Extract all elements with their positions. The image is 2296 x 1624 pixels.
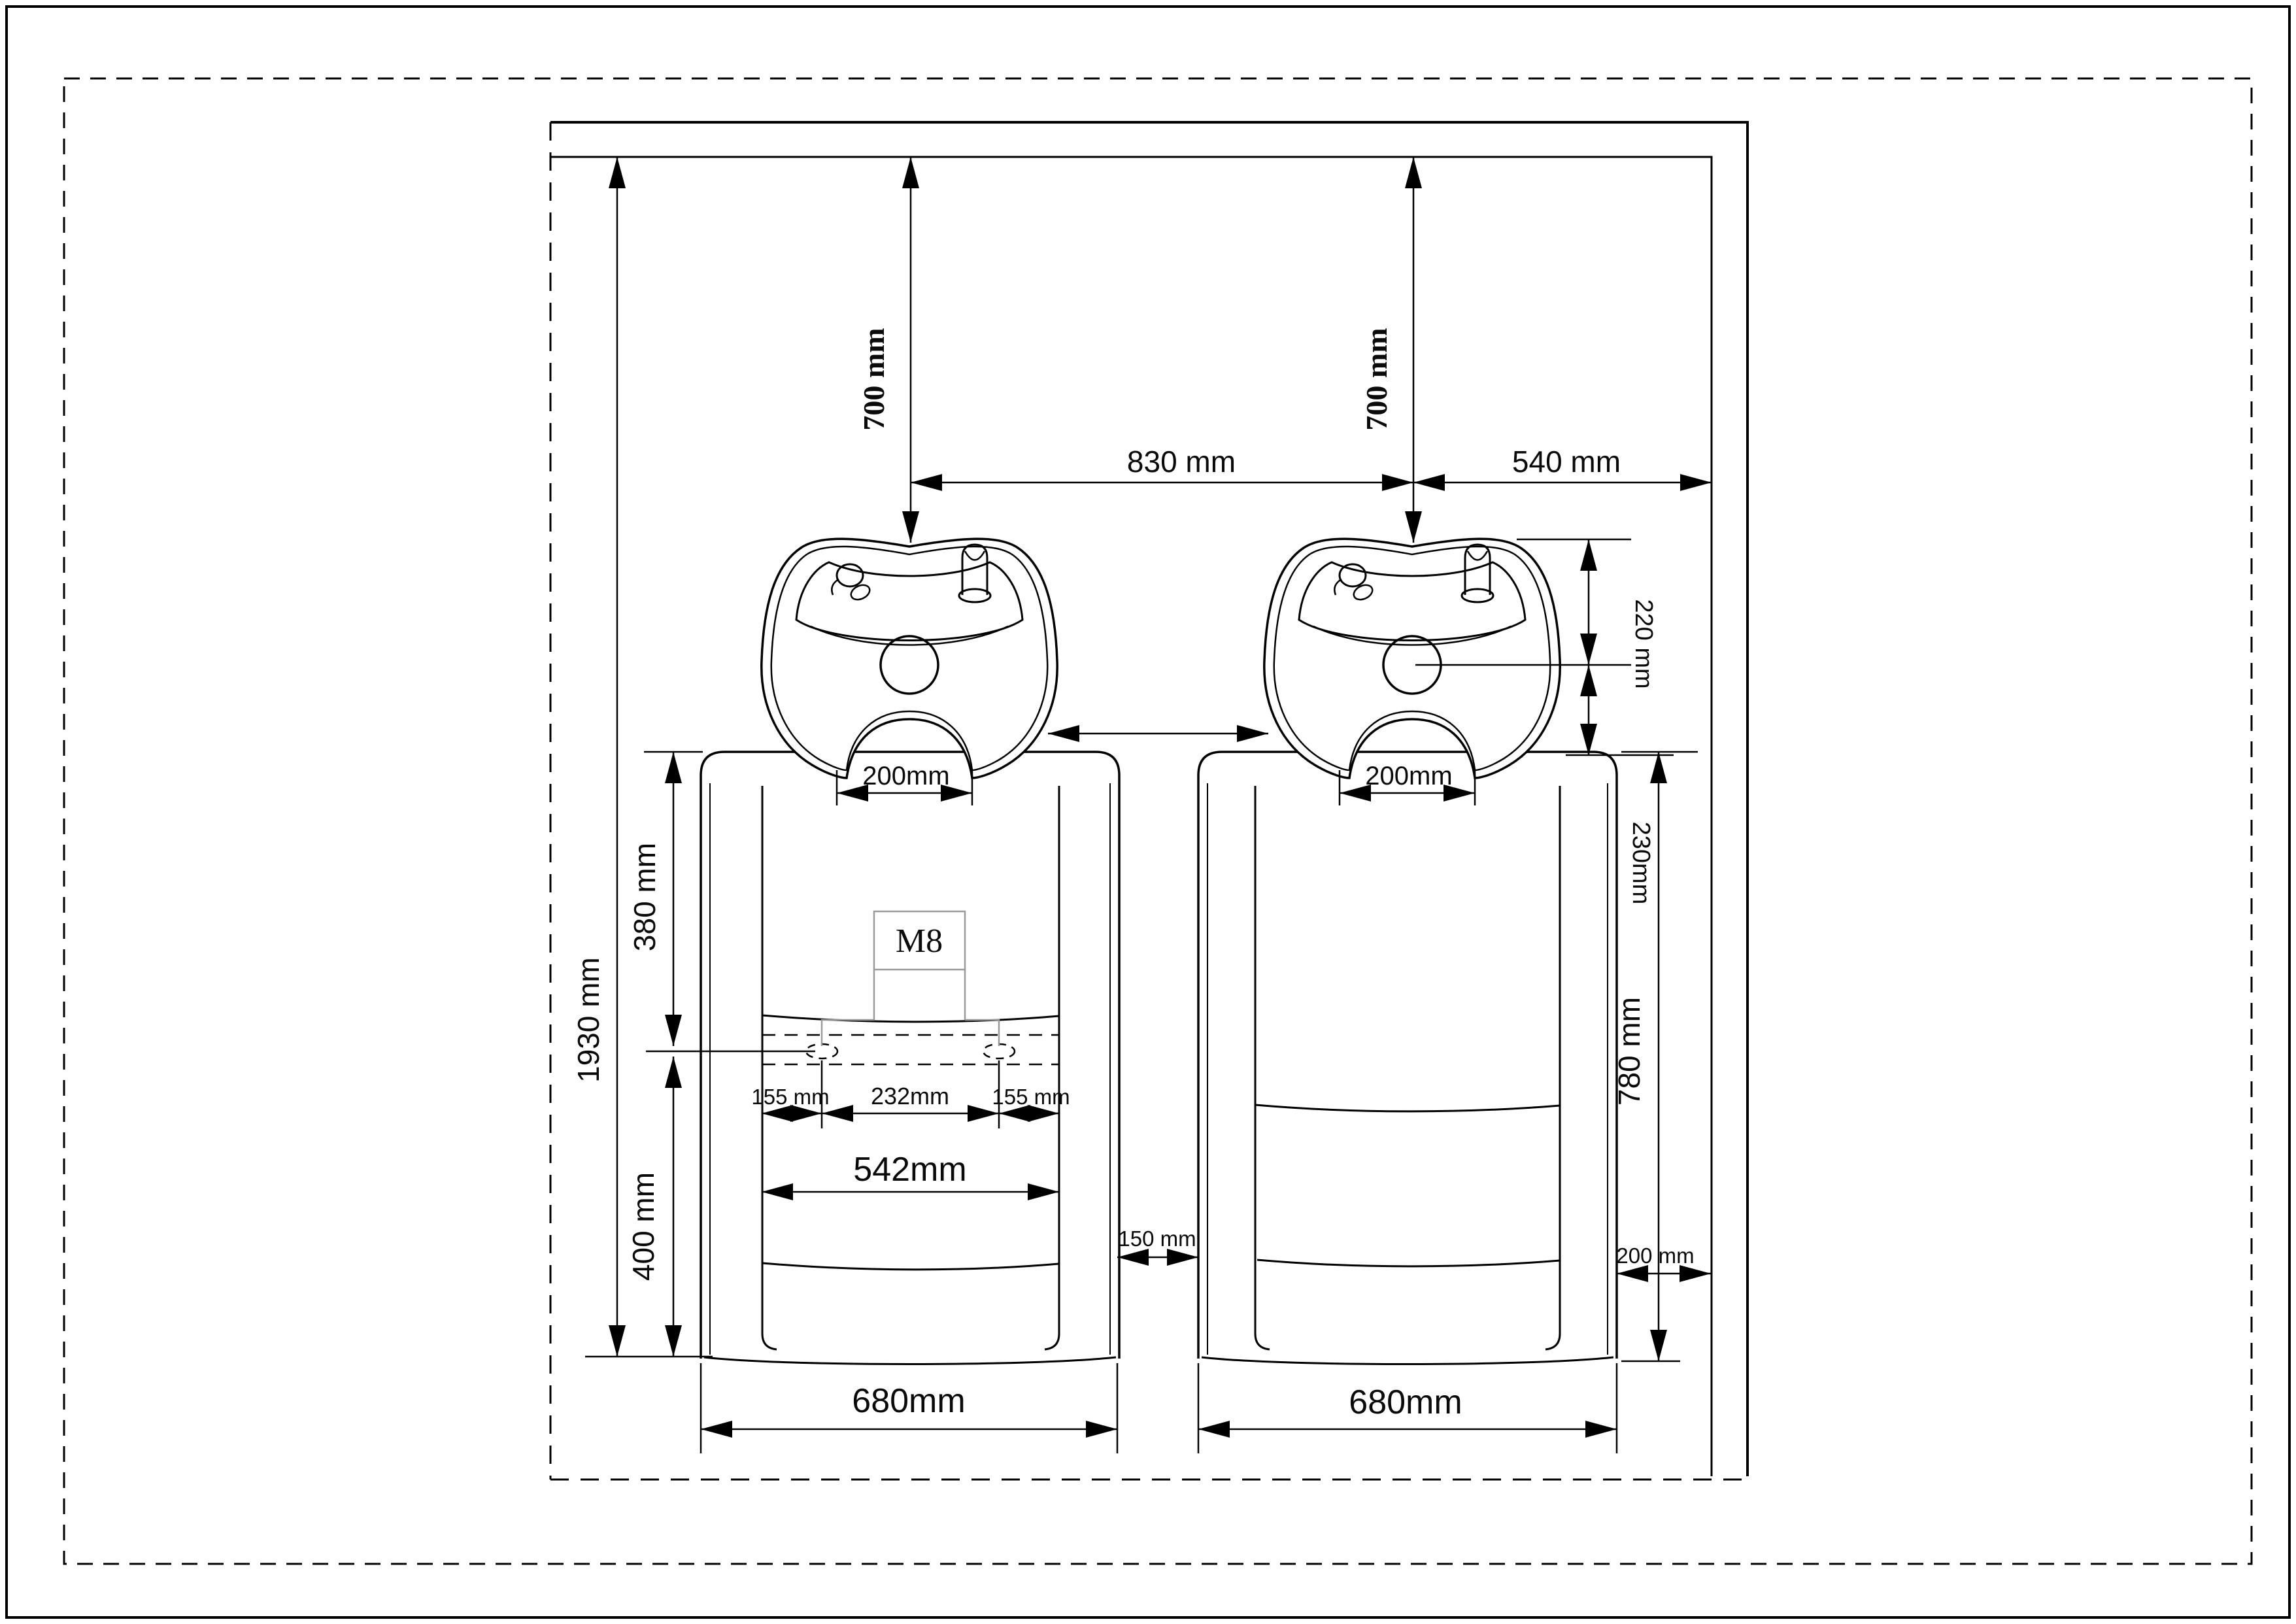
technical-drawing: 1930 mm 700 mm 700 mm 830 mm 540 mm 220 … bbox=[0, 0, 2296, 1624]
label-680-left: 680mm bbox=[852, 1382, 965, 1420]
label-830: 830 mm bbox=[1127, 445, 1236, 479]
left-unit-bottom bbox=[704, 1357, 1116, 1364]
right-unit-shell bbox=[1198, 752, 1617, 1359]
left-backrest-seam bbox=[762, 1015, 1059, 1022]
label-540: 540 mm bbox=[1512, 445, 1621, 479]
dashed-border bbox=[64, 78, 2252, 1564]
label-155-right: 155 mm bbox=[992, 1085, 1070, 1109]
dim-400: 400 mm bbox=[626, 1057, 673, 1357]
dim-neck-200-right: 200mm bbox=[1340, 762, 1475, 805]
dim-830: 830 mm bbox=[911, 445, 1413, 482]
dim-155-232-155: 155 mm 232mm 155 mm bbox=[751, 1060, 1070, 1128]
right-unit bbox=[1198, 752, 1617, 1364]
label-680-right: 680mm bbox=[1349, 1383, 1462, 1421]
dim-700-right: 700 mm bbox=[1360, 157, 1413, 543]
right-basin bbox=[1264, 539, 1560, 778]
dim-150: 150 mm bbox=[1117, 1226, 1198, 1257]
label-155-left: 155 mm bbox=[751, 1085, 829, 1109]
dim-200-wall: 200 mm bbox=[1616, 1243, 1711, 1274]
wall-inner bbox=[550, 157, 1712, 1476]
label-1930: 1930 mm bbox=[571, 957, 605, 1083]
wall-outer bbox=[550, 122, 1747, 1476]
dim-540: 540 mm bbox=[1413, 445, 1712, 482]
label-200-wall: 200 mm bbox=[1616, 1243, 1694, 1268]
label-m8: M8 bbox=[896, 922, 943, 960]
left-basin bbox=[762, 539, 1057, 778]
dim-680-left: 680mm bbox=[701, 1363, 1117, 1453]
left-unit bbox=[701, 752, 1119, 1364]
left-unit-shell bbox=[701, 752, 1119, 1359]
label-200-right: 200mm bbox=[1365, 762, 1452, 790]
label-700-left: 700 mm bbox=[857, 328, 890, 430]
right-cushion-edge-r bbox=[1545, 786, 1560, 1349]
dim-neck-200-left: 200mm bbox=[837, 762, 972, 805]
right-seat-seam bbox=[1257, 1260, 1560, 1266]
label-220: 220 mm bbox=[1630, 599, 1657, 688]
label-380: 380 mm bbox=[628, 843, 662, 951]
drawing-page: 1930 mm 700 mm 700 mm 830 mm 540 mm 220 … bbox=[0, 0, 2296, 1624]
label-780: 780 mm bbox=[1612, 997, 1646, 1106]
label-542: 542mm bbox=[853, 1151, 966, 1189]
dim-380: 380 mm bbox=[628, 752, 703, 1046]
label-150: 150 mm bbox=[1118, 1226, 1196, 1251]
bolt-hole-right bbox=[983, 1044, 1015, 1058]
outer-border bbox=[7, 7, 2289, 1617]
right-backrest-seam bbox=[1255, 1105, 1560, 1111]
dim-680-right: 680mm bbox=[1198, 1363, 1617, 1453]
dim-700-left: 700 mm bbox=[857, 157, 911, 543]
right-unit-bottom bbox=[1202, 1357, 1613, 1364]
left-seat-seam bbox=[762, 1263, 1059, 1270]
label-200-left: 200mm bbox=[862, 762, 949, 790]
dim-542: 542mm bbox=[762, 1151, 1059, 1192]
right-cushion-edge-l bbox=[1255, 786, 1270, 1349]
label-400: 400 mm bbox=[626, 1172, 660, 1281]
label-700-right: 700 mm bbox=[1360, 328, 1393, 430]
label-230: 230mm bbox=[1627, 822, 1655, 905]
label-232: 232mm bbox=[871, 1083, 949, 1109]
